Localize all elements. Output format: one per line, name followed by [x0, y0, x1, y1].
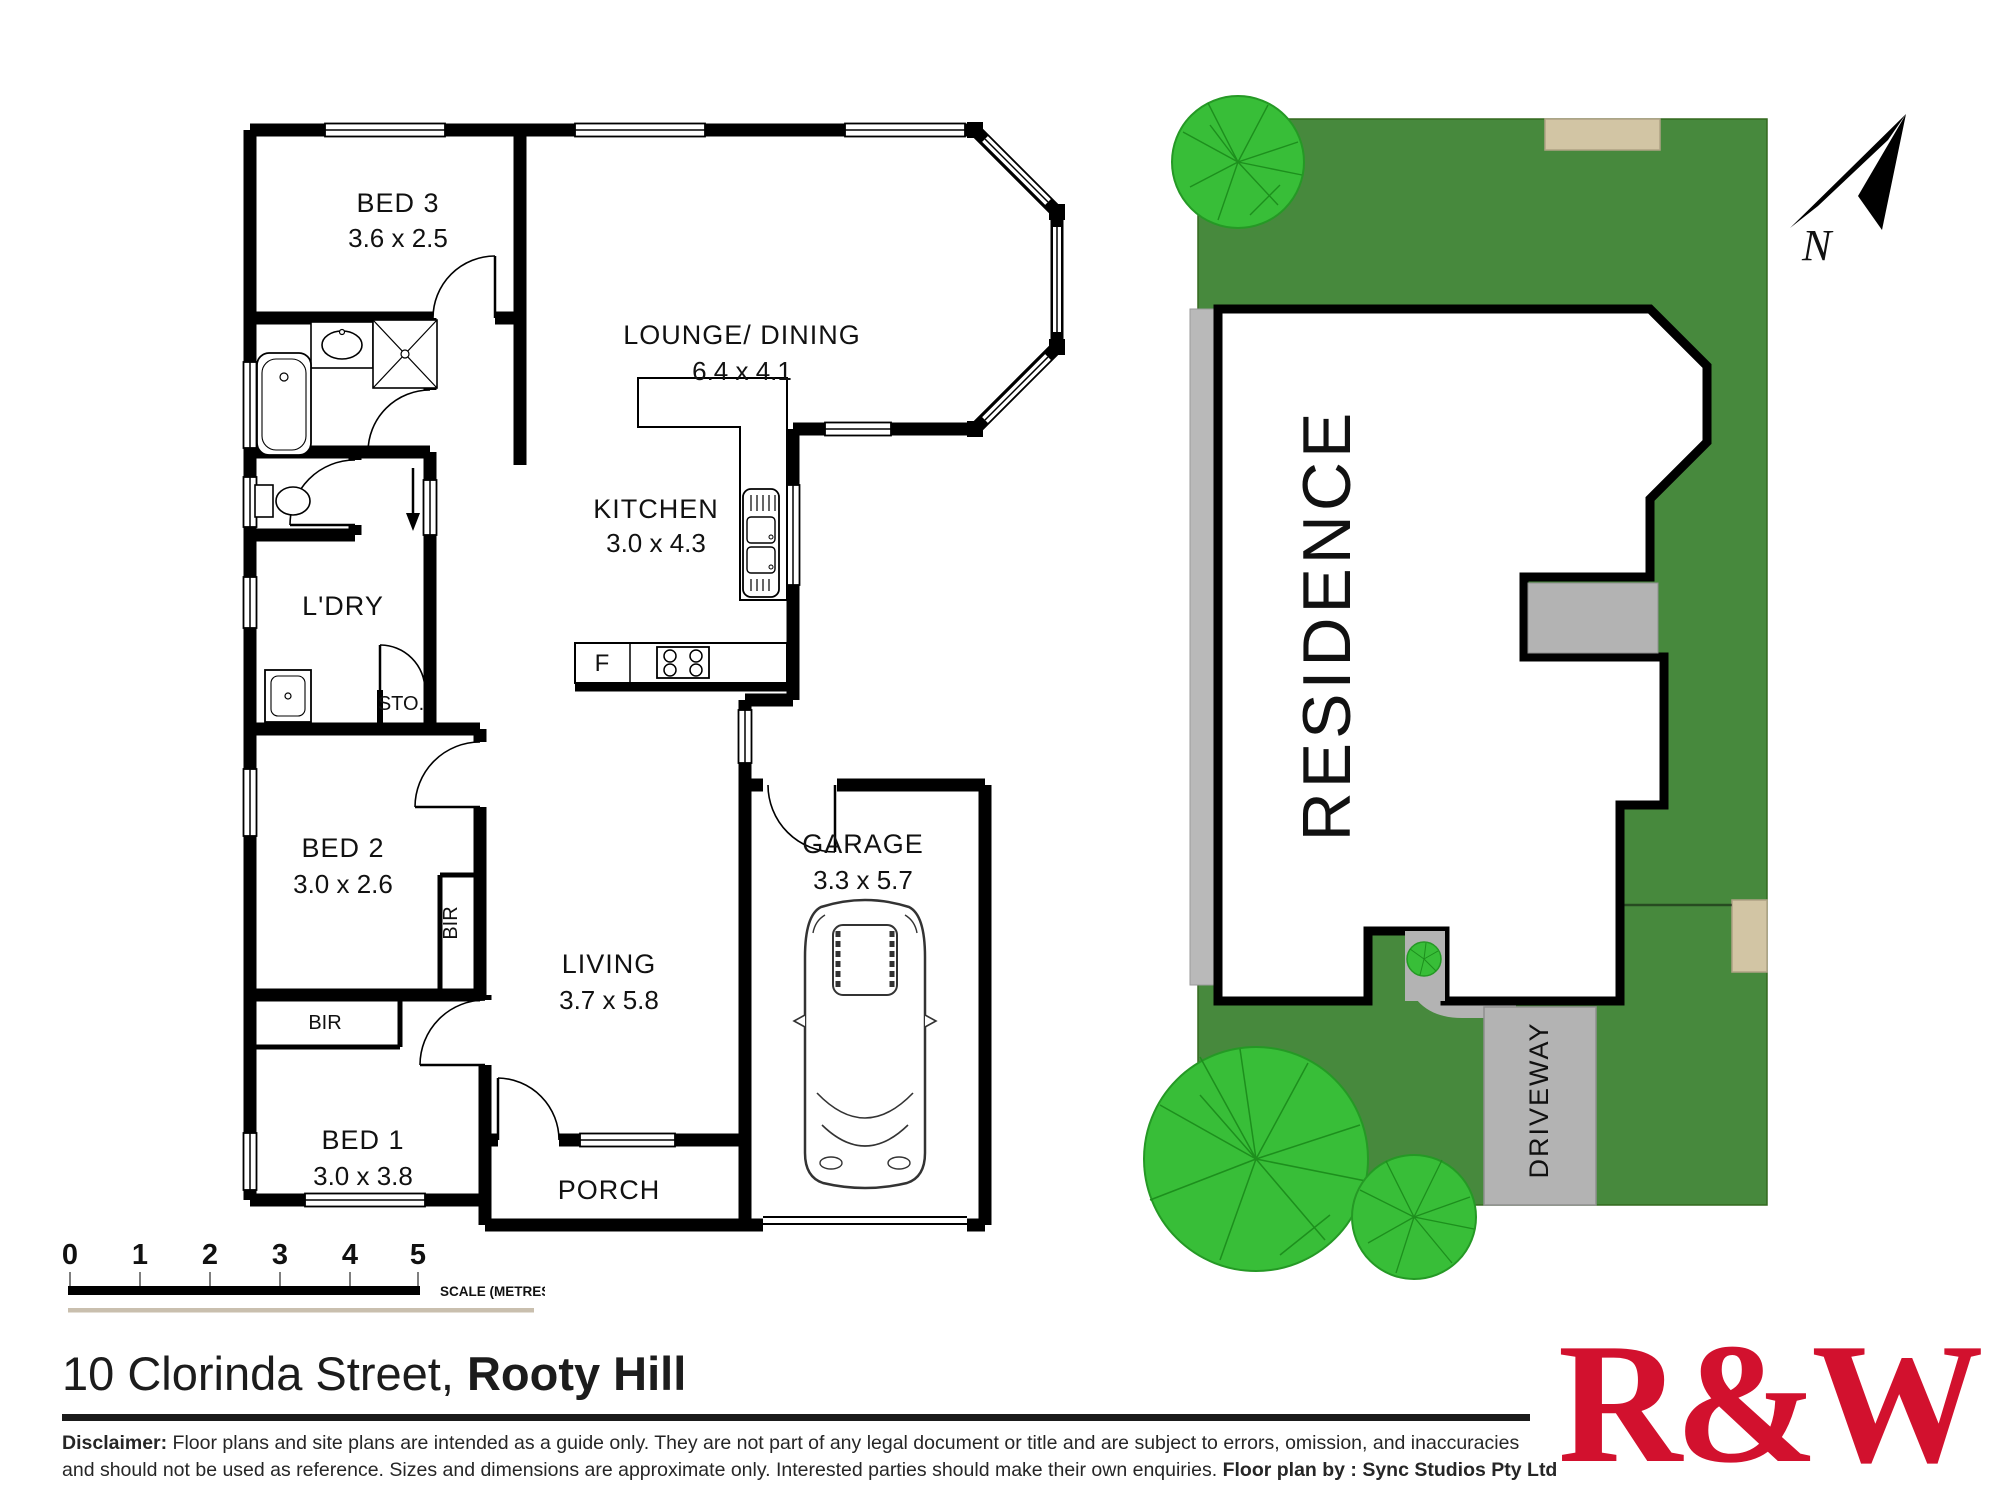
- scale-tick-3: 3: [272, 1239, 288, 1271]
- site-plan: RESIDENCE DRIVEWAY: [1180, 105, 1775, 1250]
- room-dims-bed1: 3.0 x 3.8: [313, 1161, 413, 1191]
- shower-icon: [373, 320, 437, 388]
- room-label-living: LIVING: [562, 949, 657, 979]
- disclaimer-line1: Floor plans and site plans are intended …: [167, 1432, 1519, 1454]
- divider-rule: [62, 1414, 1530, 1421]
- room-label-bed3: BED 3: [356, 188, 439, 218]
- bay-window: [967, 122, 1065, 437]
- closet-label-bir-bed1: BIR: [308, 1012, 341, 1034]
- closet-label-bir-bed2: BIR: [440, 906, 462, 939]
- disclaimer: Disclaimer: Floor plans and site plans a…: [62, 1430, 1562, 1483]
- scale-bar: 0 1 2 3 4 5 SCALE (METRES): [55, 1238, 545, 1318]
- tree-top: [1172, 96, 1304, 228]
- tree-bottom-large: [1144, 1047, 1368, 1271]
- room-label-garage: GARAGE: [802, 829, 924, 859]
- room-label-bed1: BED 1: [321, 1125, 404, 1155]
- scale-tick-2: 2: [202, 1239, 218, 1271]
- room-label-lounge: LOUNGE/ DINING: [623, 320, 861, 350]
- vanity-icon: [311, 322, 373, 368]
- laundry-tub-icon: [265, 670, 311, 722]
- room-label-porch: PORCH: [558, 1175, 661, 1205]
- north-arrow-icon: N: [1782, 108, 1922, 268]
- fridge-label: F: [595, 650, 610, 677]
- room-label-laundry: L'DRY: [302, 591, 384, 621]
- driveway-label: DRIVEWAY: [1524, 1021, 1554, 1178]
- room-dims-lounge: 6.4 x 4.1: [692, 356, 792, 386]
- room-dims-kitchen: 3.0 x 4.3: [606, 528, 706, 558]
- room-label-storage: STO.: [378, 693, 424, 715]
- address-suburb: Rooty Hill: [467, 1347, 686, 1400]
- sink-icon: [743, 489, 779, 597]
- disclaimer-prefix: Disclaimer:: [62, 1432, 167, 1454]
- car-icon: [794, 900, 936, 1188]
- patio-top: [1545, 119, 1660, 150]
- toilet-icon: [255, 485, 310, 517]
- room-dims-garage: 3.3 x 5.7: [813, 865, 913, 895]
- bathtub-icon: [257, 353, 311, 455]
- floor-plan: BED 3 3.6 x 2.5 LOUNGE/ DINING 6.4 x 4.1…: [185, 85, 1065, 1265]
- north-label: N: [1801, 221, 1834, 268]
- scale-tick-4: 4: [342, 1239, 358, 1271]
- address-street: 10 Clorinda Street,: [62, 1347, 467, 1400]
- shrub: [1407, 942, 1441, 976]
- room-dims-living: 3.7 x 5.8: [559, 985, 659, 1015]
- floorplan-sheet: BED 3 3.6 x 2.5 LOUNGE/ DINING 6.4 x 4.1…: [0, 0, 2000, 1500]
- gate-right: [1732, 900, 1767, 972]
- room-dims-bed3: 3.6 x 2.5: [348, 223, 448, 253]
- property-address: 10 Clorinda Street, Rooty Hill: [62, 1346, 686, 1401]
- scale-tick-1: 1: [132, 1239, 148, 1271]
- room-label-bed2: BED 2: [301, 833, 384, 863]
- rw-logo: R&W: [1558, 1318, 1977, 1490]
- room-dims-bed2: 3.0 x 2.6: [293, 869, 393, 899]
- tree-bottom-small: [1352, 1155, 1476, 1279]
- room-label-kitchen: KITCHEN: [593, 494, 719, 524]
- scale-unit-label: SCALE (METRES): [440, 1284, 545, 1299]
- floorplan-credit: Floor plan by : Sync Studios Pty Ltd: [1223, 1459, 1558, 1481]
- entry-arrow-icon: [406, 468, 420, 531]
- disclaimer-line2: and should not be used as reference. Siz…: [62, 1459, 1223, 1481]
- scale-tick-5: 5: [410, 1239, 426, 1271]
- scale-tick-0: 0: [62, 1239, 78, 1271]
- paving-nook: [1528, 583, 1658, 653]
- residence-label: RESIDENCE: [1289, 409, 1365, 842]
